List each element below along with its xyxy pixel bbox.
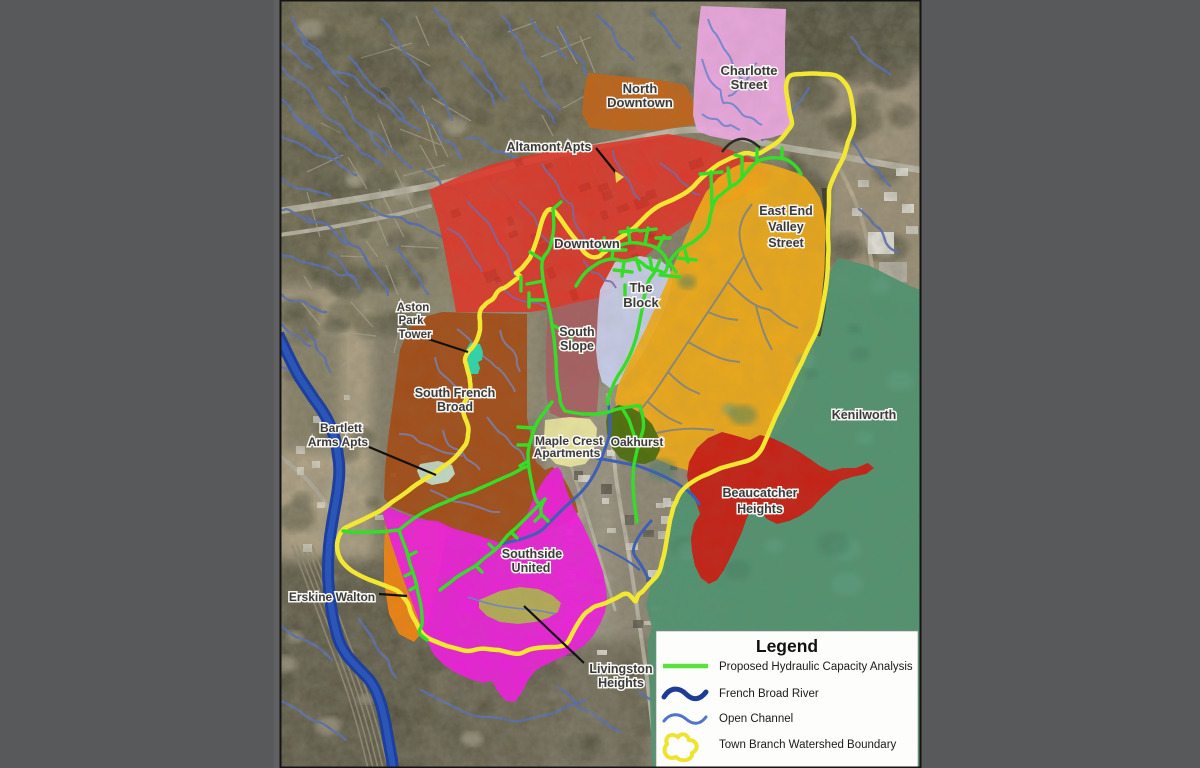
svg-text:Street: Street [768,236,804,250]
svg-text:Tower: Tower [398,329,432,341]
svg-text:Oakhurst: Oakhurst [611,435,664,449]
svg-text:Arms Apts: Arms Apts [308,435,369,449]
svg-text:North: North [623,81,658,96]
svg-text:Downtown: Downtown [554,236,620,251]
svg-text:The: The [629,280,652,295]
svg-text:Park: Park [399,315,425,327]
svg-text:East End: East End [759,204,813,218]
svg-text:South French: South French [415,386,496,400]
svg-text:Proposed Hydraulic Capacity An: Proposed Hydraulic Capacity Analysis [719,661,913,673]
svg-text:Charlotte: Charlotte [720,63,777,78]
svg-text:Town Branch Watershed Boundary: Town Branch Watershed Boundary [719,739,897,751]
svg-text:Kenilworth: Kenilworth [832,408,897,422]
svg-text:Broad: Broad [437,400,473,414]
svg-text:French Broad River: French Broad River [719,688,819,700]
svg-text:Legend: Legend [756,636,818,656]
svg-text:United: United [512,561,551,575]
svg-text:Southside: Southside [502,547,562,561]
svg-text:Heights: Heights [737,502,783,516]
svg-text:Beaucatcher: Beaucatcher [722,486,797,500]
svg-text:Aston: Aston [397,302,430,314]
svg-text:Erskine Walton: Erskine Walton [289,590,375,604]
svg-text:Apartments: Apartments [534,446,601,460]
svg-text:South: South [559,325,594,339]
svg-text:Heights: Heights [598,676,644,690]
svg-text:Block: Block [623,295,659,310]
svg-text:Slope: Slope [560,339,594,353]
svg-text:Bartlett: Bartlett [320,421,362,435]
svg-text:Livingston: Livingston [589,662,652,676]
svg-text:Altamont Apts: Altamont Apts [507,140,592,154]
svg-text:Valley: Valley [768,220,803,234]
svg-text:Downtown: Downtown [607,95,673,110]
svg-text:Open Channel: Open Channel [719,713,793,725]
svg-text:Street: Street [731,77,769,92]
